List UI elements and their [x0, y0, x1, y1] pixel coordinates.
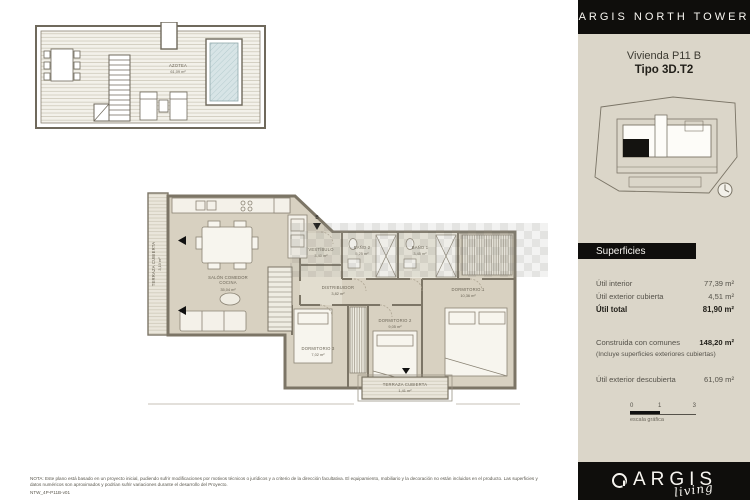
superficies-title: Superficies: [578, 246, 645, 257]
roof-area: 61,09 m²: [170, 69, 186, 74]
floor-plan: B: [140, 183, 560, 443]
row-value: 61,09 m²: [704, 373, 734, 386]
roof-table: [44, 49, 80, 81]
scale-bar: [630, 411, 660, 414]
roof-label: AZOTEA: [169, 63, 187, 68]
unit-type: Tipo 3D.T2: [578, 64, 750, 76]
dining-table: [196, 221, 258, 269]
info-sidebar: ARGIS NORTH TOWER Vivienda P11 B Tipo 3D…: [578, 0, 750, 500]
graphic-scale: 0 1 3 escala gráfica: [630, 403, 696, 423]
unit-highlight: [623, 139, 649, 157]
row-label: Útil exterior cubierta: [596, 290, 664, 303]
plan-sheet: AZOTEA 61,09 m²: [0, 0, 750, 500]
watermark-mosaic: [290, 223, 548, 277]
wardrobe-hall: [350, 307, 366, 373]
table-row-descubierta: Útil exterior descubierta 61,09 m²: [596, 373, 734, 386]
row-value: 148,20 m²: [699, 336, 734, 349]
row-value: 4,51 m²: [708, 290, 734, 303]
scale-0: 0: [630, 403, 633, 409]
table-row-construida: Construida con comunes 148,20 m²: [596, 336, 734, 349]
table-row: Útil exterior cubierta 4,51 m²: [596, 290, 734, 303]
svg-text:DORMITORIO 3: DORMITORIO 3: [301, 346, 335, 351]
svg-text:TERRAZA CUBIERTA: TERRAZA CUBIERTA: [383, 382, 427, 387]
row-label: Útil interior: [596, 277, 632, 290]
svg-text:9,05 m²: 9,05 m²: [388, 324, 402, 329]
svg-text:3,82 m²: 3,82 m²: [331, 291, 345, 296]
svg-text:10,36 m²: 10,36 m²: [460, 293, 476, 298]
svg-text:DISTRIBUIDOR: DISTRIBUIDOR: [322, 285, 354, 290]
table-row: Útil interior 77,39 m²: [596, 277, 734, 290]
compass-clock-icon: [718, 183, 732, 197]
row-value: 77,39 m²: [704, 277, 734, 290]
bed-dorm1: [445, 308, 507, 376]
site-plan: [589, 92, 739, 204]
unit-block: Vivienda P11 B Tipo 3D.T2: [578, 50, 750, 76]
row-label: Construida con comunes: [596, 336, 680, 349]
svg-text:TERRAZA CUBIERTA: TERRAZA CUBIERTA: [151, 242, 156, 286]
svg-text:3,10 m²: 3,10 m²: [157, 257, 162, 271]
unit-name: Vivienda P11 B: [578, 50, 750, 62]
scale-1: 1: [658, 403, 661, 409]
table-row-total: Útil total 81,90 m²: [596, 303, 734, 316]
stairs: [268, 267, 292, 331]
plan-code: NTW_4P-P11B-v01: [30, 490, 70, 495]
construida-note: (Incluye superficies exteriores cubierta…: [596, 350, 734, 359]
svg-text:DORMITORIO 2: DORMITORIO 2: [378, 318, 412, 323]
svg-text:DORMITORIO 1: DORMITORIO 1: [451, 287, 485, 292]
brand-logo-icon: [611, 472, 628, 489]
project-title: ARGIS NORTH TOWER: [579, 11, 750, 23]
superficies-table: Útil interior 77,39 m² Útil exterior cub…: [596, 277, 734, 386]
scale-caption: escala gráfica: [630, 417, 696, 423]
roof-plan: AZOTEA 61,09 m²: [35, 22, 267, 134]
disclaimer-note: NOTA: Este plano está basado en un proye…: [30, 476, 545, 487]
row-label: Útil total: [596, 303, 627, 316]
note-line2: numéricos son aproximados y podrían sufr…: [43, 482, 228, 487]
superficies-header: Superficies: [578, 243, 696, 259]
svg-text:1,41 m²: 1,41 m²: [398, 388, 412, 393]
pool: [206, 39, 242, 105]
scale-3: 3: [693, 403, 696, 409]
svg-text:35,04 m²: 35,04 m²: [220, 287, 236, 292]
sidebar-footer: ARGIS living: [578, 462, 750, 500]
svg-text:COCINA: COCINA: [219, 280, 237, 285]
sidebar-header: ARGIS NORTH TOWER: [578, 0, 750, 34]
row-label: Útil exterior descubierta: [596, 373, 676, 386]
row-value: 81,90 m²: [703, 303, 734, 316]
svg-text:7,02 m²: 7,02 m²: [311, 352, 325, 357]
roof-vent: [161, 22, 177, 49]
